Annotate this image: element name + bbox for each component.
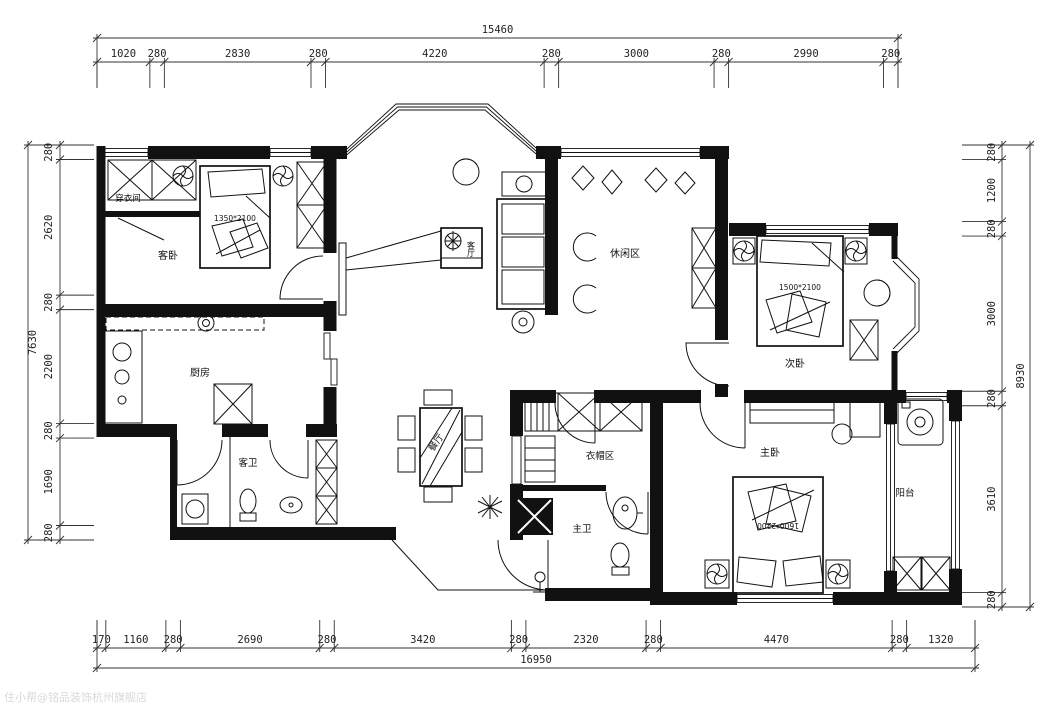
room-label-guest-bath: 客卫 [238, 457, 258, 469]
dim-label-bottom-9: 4470 [764, 634, 789, 646]
watermark: 住小帮@铭品装饰杭州旗舰店 [4, 690, 147, 704]
dressing-room-door [118, 218, 164, 240]
dim-label-top-7: 280 [712, 48, 731, 60]
dim-label-left-2: 280 [43, 293, 55, 312]
floor-plan-drawing: 1020280283028042202803000280299028015460… [0, 0, 1054, 712]
dim-total-left: 7630 [27, 330, 39, 355]
dim-chain-bottom: 1701160280269028034202802320280447028013… [92, 620, 979, 672]
dim-label-top-1: 280 [148, 48, 167, 60]
dim-label-top-5: 280 [542, 48, 561, 60]
dim-label-top-2: 2830 [225, 48, 250, 60]
room-label-living: 客厅 [467, 240, 476, 257]
tv-cabinet [339, 243, 346, 315]
dim-label-bottom-4: 280 [318, 634, 337, 646]
dimension-chains: 1020280283028042202803000280299028015460… [24, 24, 1034, 672]
dim-label-bottom-6: 280 [509, 634, 528, 646]
dim-label-left-6: 280 [43, 523, 55, 542]
dim-label-bottom-0: 170 [92, 634, 111, 646]
guest-bath-fixtures [182, 437, 337, 527]
room-label-balcony: 阳台 [895, 487, 914, 499]
floor-plan-sheet: 1020280283028042202803000280299028015460… [0, 0, 1054, 712]
cloak-area-furniture [525, 393, 642, 482]
dim-label-left-4: 280 [43, 421, 55, 440]
dim-label-right-0: 280 [986, 143, 998, 162]
dim-total-right: 8930 [1015, 363, 1027, 388]
second-bedroom-door [686, 343, 729, 386]
master-bedroom-door [700, 403, 745, 448]
dim-label-top-9: 280 [881, 48, 900, 60]
dining-furniture [398, 390, 502, 519]
master-bedroom-furniture [705, 397, 880, 593]
dim-label-bottom-2: 280 [164, 634, 183, 646]
dim-label-right-6: 280 [986, 590, 998, 609]
dim-label-top-3: 280 [309, 48, 328, 60]
dim-label-bottom-5: 3420 [410, 634, 435, 646]
guest-bath-door [270, 440, 308, 478]
dim-label-bottom-10: 280 [890, 634, 909, 646]
dim-chain-right: 2801200280300028036102808930 [962, 141, 1034, 611]
entry-porch [392, 540, 548, 590]
second-bed-size-label: 1500*2100 [779, 283, 821, 292]
dim-label-bottom-8: 280 [644, 634, 663, 646]
master-bed-size-label: 1600*2200 [757, 521, 799, 530]
dim-label-top-0: 1020 [111, 48, 136, 60]
room-label-master-bedroom: 主卧 [760, 446, 780, 459]
dim-label-top-4: 4220 [422, 48, 447, 60]
dim-label-left-1: 2620 [43, 215, 55, 240]
room-label-cloak-area: 衣帽区 [586, 450, 615, 462]
dim-label-right-2: 280 [986, 219, 998, 238]
washing-machine [898, 399, 943, 445]
guest-bed-size-label: 1350*2100 [214, 214, 256, 223]
dim-chain-top: 1020280283028042202803000280299028015460 [93, 24, 902, 88]
leisure-furniture [572, 166, 716, 313]
room-label-second-bedroom: 次卧 [785, 357, 805, 370]
dim-label-left-5: 1690 [43, 469, 55, 494]
dim-label-right-3: 3000 [986, 301, 998, 326]
dim-total-top: 15460 [482, 24, 514, 36]
room-label-leisure: 休闲区 [610, 247, 640, 260]
plant-icon [478, 495, 502, 519]
living-room-furniture [339, 159, 549, 333]
dim-label-bottom-7: 2320 [573, 634, 598, 646]
dim-label-bottom-3: 2690 [237, 634, 262, 646]
dim-label-top-8: 2990 [793, 48, 818, 60]
room-label-master-bath: 主卫 [572, 523, 592, 535]
dim-chain-left: 2802620280220028016902807630 [24, 141, 94, 544]
kitchen-furniture [104, 315, 264, 424]
second-bedroom-furniture [733, 236, 890, 360]
room-label-kitchen: 厨房 [190, 366, 210, 379]
dim-label-bottom-11: 1320 [928, 634, 953, 646]
dim-total-bottom: 16950 [520, 654, 552, 666]
dim-label-right-5: 3610 [986, 486, 998, 511]
room-label-guest-bedroom: 客卧 [158, 249, 178, 262]
master-bath-fixtures [516, 497, 643, 592]
dim-label-right-1: 1200 [986, 178, 998, 203]
guest-bedroom-door [280, 256, 323, 299]
dim-label-left-3: 2200 [43, 354, 55, 379]
storage-door [177, 440, 222, 485]
room-label-dressing: 穿衣间 [115, 193, 141, 204]
dim-label-right-4: 280 [986, 389, 998, 408]
dim-label-top-6: 3000 [624, 48, 649, 60]
dim-label-left-0: 280 [43, 143, 55, 162]
dim-label-bottom-1: 1160 [123, 634, 148, 646]
